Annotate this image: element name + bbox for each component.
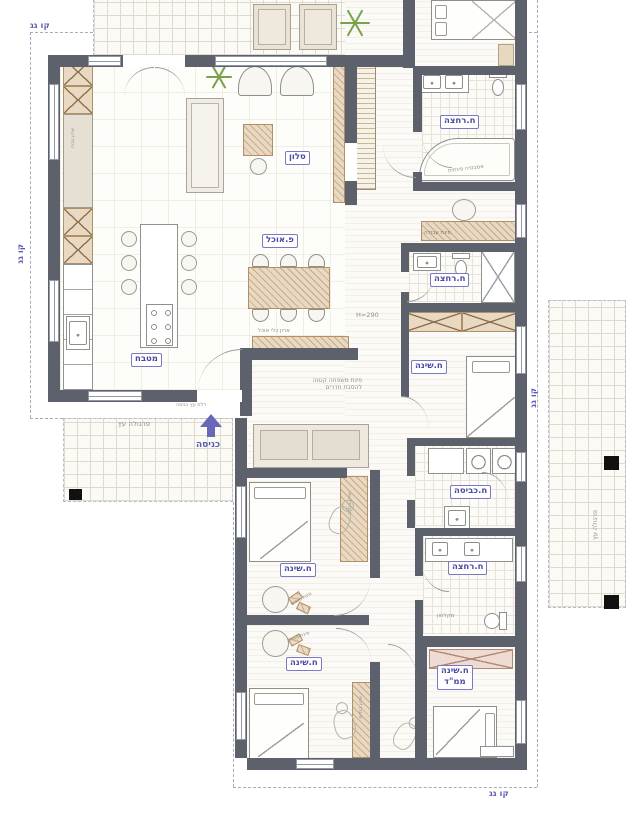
roof-line-bottom: [233, 787, 537, 788]
sofa-cushion: [191, 103, 219, 188]
sink: [445, 75, 463, 89]
wall: [401, 312, 409, 397]
room-label-bedroom-2: ח.שינה: [286, 657, 322, 671]
room-label-mamad: ח.שינה ממ"ד: [437, 665, 473, 690]
pouf: [250, 158, 267, 175]
wall: [370, 470, 380, 578]
wall: [240, 348, 358, 360]
wall: [407, 446, 415, 476]
roof-line-entrance: [30, 418, 63, 419]
window: [88, 391, 142, 401]
roof-line-left: [30, 32, 31, 418]
pergola-entrance-note: פרגולה עץ: [118, 421, 150, 428]
bar-stool: [181, 231, 197, 247]
plant-icon: [206, 64, 232, 90]
laundry-cabinet: [428, 448, 464, 474]
wall: [415, 528, 527, 536]
entrance-label: כניסה: [196, 440, 220, 450]
window: [236, 692, 246, 740]
bar-stool: [121, 231, 137, 247]
round-table: [262, 630, 289, 657]
bench: [498, 44, 514, 66]
toilet-tank: [499, 612, 507, 630]
sink: [464, 542, 480, 556]
dining-chair: [252, 254, 269, 267]
wall: [247, 615, 369, 625]
desk: [480, 746, 514, 757]
toilet-bowl: [492, 79, 504, 96]
side-table: [243, 124, 273, 156]
deck-lounger: [299, 4, 337, 50]
bed: [249, 482, 311, 562]
room-label-kitchen: מטבח: [131, 353, 162, 367]
tv-wall-cladding: [333, 57, 345, 203]
bar-stool: [181, 279, 197, 295]
pergola-column: [604, 595, 619, 609]
window: [516, 326, 526, 374]
wall: [415, 600, 423, 636]
bed: [249, 688, 309, 760]
roof-label-top: קו גג: [30, 21, 50, 31]
wall: [401, 252, 409, 272]
tall-cabinet: [63, 208, 93, 236]
plant-icon: [340, 8, 370, 38]
roof-label-left: קו גג: [16, 244, 26, 264]
door-opening: [345, 143, 357, 181]
bed: [466, 356, 516, 438]
dining-chair: [308, 254, 325, 267]
right-pergola-grid: [548, 300, 626, 608]
wall: [345, 55, 357, 205]
wall: [403, 0, 415, 68]
wall: [247, 468, 347, 478]
bar-stool: [121, 255, 137, 271]
window: [88, 56, 121, 66]
mamad-label-line1: ח.שינה: [441, 666, 469, 677]
window: [215, 56, 327, 66]
sink: [417, 256, 437, 268]
family-note-line2: להסבת חדרים: [272, 384, 362, 391]
wall: [407, 438, 527, 446]
room-label-living: סלון: [285, 151, 310, 165]
sink: [432, 542, 448, 556]
toilet-bowl: [484, 613, 500, 629]
window: [49, 280, 59, 342]
tall-cabinet: [63, 86, 93, 114]
shower-stall-note: מקלחון: [437, 613, 454, 620]
roof-label-right: קו גג: [529, 388, 539, 408]
wall: [407, 500, 415, 528]
room-label-dining: פ.אוכל: [262, 234, 298, 248]
wall: [413, 182, 527, 191]
family-sofa-seat: [260, 430, 308, 460]
wall: [401, 243, 527, 252]
desk-chair: [452, 199, 476, 221]
window: [49, 84, 59, 160]
window: [516, 204, 526, 238]
window: [296, 759, 334, 769]
toilet-tank: [452, 253, 470, 259]
dining-chair: [280, 254, 297, 267]
entrance-arrow-icon: [200, 414, 222, 427]
roof-label-bottom: קו גג: [489, 789, 509, 799]
wall: [370, 662, 380, 758]
dish-cabinet-note: ארון כלי אוכל: [258, 328, 290, 335]
floor-plan: ארון גבוה ארון כלי אוכל TV H=290 פינת מש…: [0, 0, 633, 818]
dining-table: [248, 267, 330, 309]
wall: [401, 303, 527, 312]
window: [516, 84, 526, 130]
pantry-cabinet: [63, 114, 93, 208]
mamad-label-line2: ממ"ד: [441, 677, 469, 688]
wardrobe: [462, 312, 518, 332]
room-label-bath-top: ח.רחצה: [440, 115, 479, 129]
family-corner-note: פינת משפחה קטנה להסבת חדרים: [272, 377, 362, 391]
family-note-line1: פינת משפחה קטנה: [272, 377, 362, 384]
room-label-bath-bottom: ח.רחצה: [448, 561, 487, 575]
entry-door-note: דלת עץ כניסה: [176, 402, 206, 409]
mamad-wall: [415, 647, 427, 758]
work-corner-note: פינת עבודה: [424, 230, 451, 237]
kitchen-sink-basin: [69, 321, 87, 345]
bar-stool: [121, 279, 137, 295]
room-label-laundry: ח.כביסה: [450, 485, 491, 499]
sink: [423, 75, 441, 89]
washing-machine: [466, 448, 491, 474]
ceiling-height-note: H=290: [356, 312, 379, 319]
window: [516, 452, 526, 482]
cooktop: [146, 304, 173, 346]
tall-cabinet: [63, 236, 93, 264]
mamad-wall: [415, 636, 527, 647]
bed: [431, 0, 517, 40]
round-table: [262, 586, 289, 613]
tall-cabinet-note: ארון גבוה: [70, 128, 77, 148]
roof-line-bottom-left: [233, 502, 234, 787]
pergola-column: [604, 456, 619, 470]
wall: [247, 758, 527, 770]
bar-stool: [181, 255, 197, 271]
pergola-right-note: פרגולה עץ: [592, 510, 599, 540]
entrance-arrow-stem: [207, 427, 215, 437]
room-label-bath-mid: ח.רחצה: [430, 273, 469, 287]
window: [516, 700, 526, 744]
room-label-bedroom-mid: ח.שינה: [411, 360, 447, 374]
room-label-bedroom-1: ח.שינה: [280, 563, 316, 577]
window: [236, 486, 246, 538]
dryer: [492, 448, 517, 474]
laundry-sink-basin: [448, 510, 466, 526]
wall: [413, 66, 527, 75]
shower: [481, 251, 515, 303]
family-sofa-seat: [312, 430, 360, 460]
wardrobe: [406, 312, 462, 332]
deck-lounger: [253, 4, 291, 50]
window: [516, 546, 526, 582]
closet-note: ארון בגדים: [358, 696, 365, 719]
door-opening: [197, 390, 242, 402]
pergola-column: [69, 489, 82, 500]
door-opening: [123, 55, 185, 67]
wall: [413, 75, 422, 132]
